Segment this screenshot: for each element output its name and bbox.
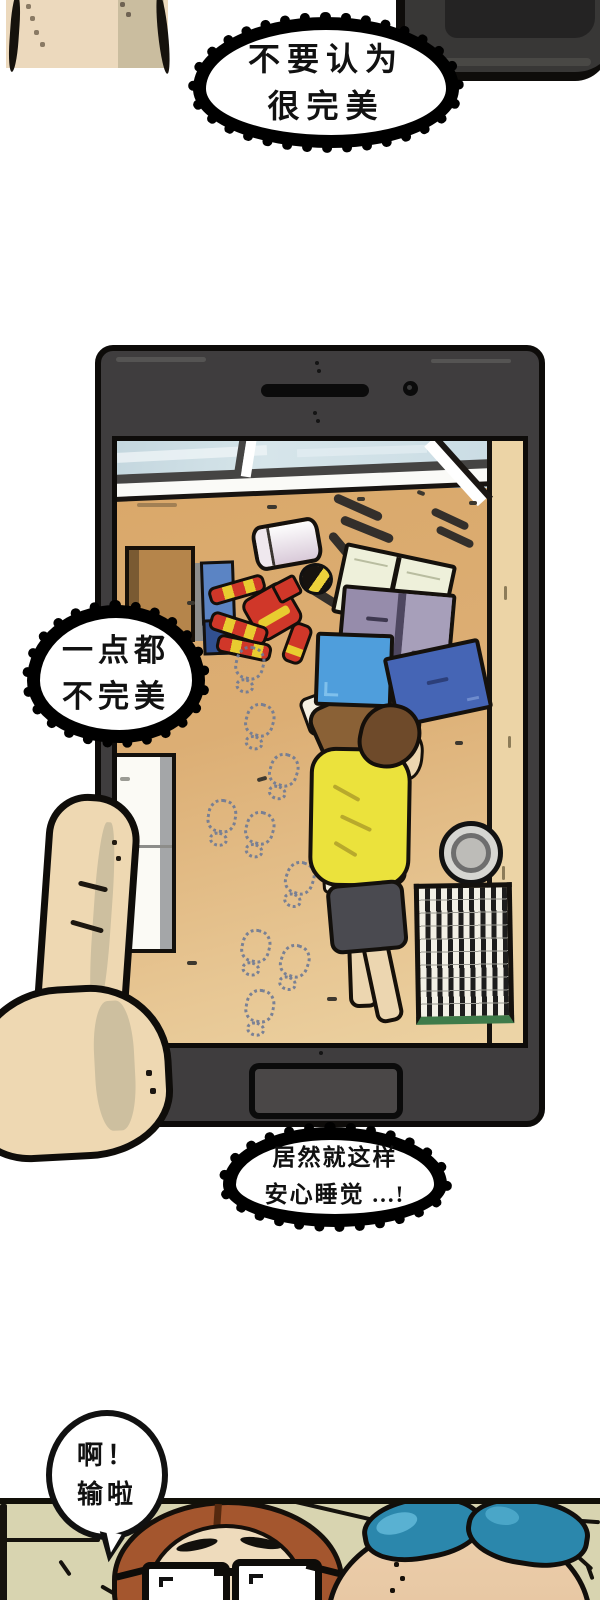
home-button xyxy=(249,1063,403,1119)
sketch-mark xyxy=(257,776,268,782)
sketch-mark xyxy=(267,505,277,509)
sketch-mark xyxy=(319,1051,323,1055)
sketch-mark xyxy=(394,1562,399,1567)
phone-corner-screen xyxy=(445,0,595,38)
sketch-mark xyxy=(508,736,511,748)
sketch-mark xyxy=(357,497,365,501)
tile-line xyxy=(58,1559,72,1576)
speech-bubble-top: 不要认为 很完美 xyxy=(196,20,456,145)
sketch-mark xyxy=(390,1588,395,1593)
sleeping-person xyxy=(285,695,425,998)
glasses-bridge xyxy=(214,1568,234,1576)
person-shorts xyxy=(325,879,409,956)
sketch-mark xyxy=(112,840,117,845)
chopstick xyxy=(339,515,394,544)
sketch-mark xyxy=(126,12,131,17)
sketch-mark xyxy=(316,419,320,423)
bezel-streak xyxy=(116,357,206,362)
footprint xyxy=(241,808,279,849)
hand-holding-phone xyxy=(0,788,183,1160)
bezel-streak xyxy=(431,359,511,363)
person-shirt xyxy=(308,746,412,888)
sketch-mark xyxy=(502,866,505,880)
top-left-arm xyxy=(0,0,180,70)
sketch-mark xyxy=(187,601,195,605)
sketch-mark xyxy=(26,4,31,9)
front-camera xyxy=(403,381,418,396)
sketch-mark xyxy=(146,1070,152,1076)
speech-bubble-below-phone: 居然就这样 安心睡觉 ...! xyxy=(226,1130,444,1224)
sketch-mark xyxy=(30,16,35,21)
sketch-mark xyxy=(40,42,45,47)
bubble-text: 不要认为 xyxy=(248,36,404,82)
speech-bubble-left: 一点都 不完美 xyxy=(30,608,202,740)
bubble-text: 输啦 xyxy=(77,1475,137,1514)
tile-line xyxy=(585,1564,594,1580)
floor-mat xyxy=(414,882,514,1025)
sketch-mark xyxy=(120,2,125,7)
sketch-mark xyxy=(469,501,477,505)
bubble-text: 很完美 xyxy=(267,83,384,129)
sketch-mark xyxy=(504,586,507,600)
bald-character-head xyxy=(316,1498,586,1600)
sketch-mark xyxy=(327,997,337,1001)
footprint xyxy=(242,986,278,1025)
bubble-text: 居然就这样 xyxy=(273,1140,398,1177)
footprint xyxy=(241,700,279,741)
sketch-mark xyxy=(317,369,321,373)
tile-line xyxy=(0,1504,7,1600)
sketch-mark xyxy=(137,503,177,507)
bowl xyxy=(439,821,503,885)
footprint xyxy=(264,749,303,791)
sketch-mark xyxy=(187,961,197,965)
comic-page: 不要认为 很完美 xyxy=(0,0,600,1600)
bubble-text: 不完美 xyxy=(62,674,170,721)
sketch-mark xyxy=(34,30,39,35)
sketch-mark xyxy=(150,1088,156,1094)
bubble-text: 一点都 xyxy=(62,628,170,675)
sketch-mark xyxy=(455,741,463,745)
sketch-mark xyxy=(315,361,319,365)
chopstick xyxy=(435,525,475,549)
bubble-text: 安心睡觉 ...! xyxy=(265,1177,406,1214)
speaker-grille xyxy=(261,384,369,397)
footprint xyxy=(237,926,274,966)
bubble-text: 啊！ xyxy=(77,1436,137,1475)
speech-bubble-bottom: 啊！ 输啦 xyxy=(46,1410,168,1540)
sketch-mark xyxy=(417,490,426,496)
sketch-mark xyxy=(116,856,121,861)
tile-line xyxy=(0,1538,100,1542)
footprint xyxy=(204,797,239,836)
sketch-mark xyxy=(400,1576,405,1581)
sketch-mark xyxy=(313,411,317,415)
